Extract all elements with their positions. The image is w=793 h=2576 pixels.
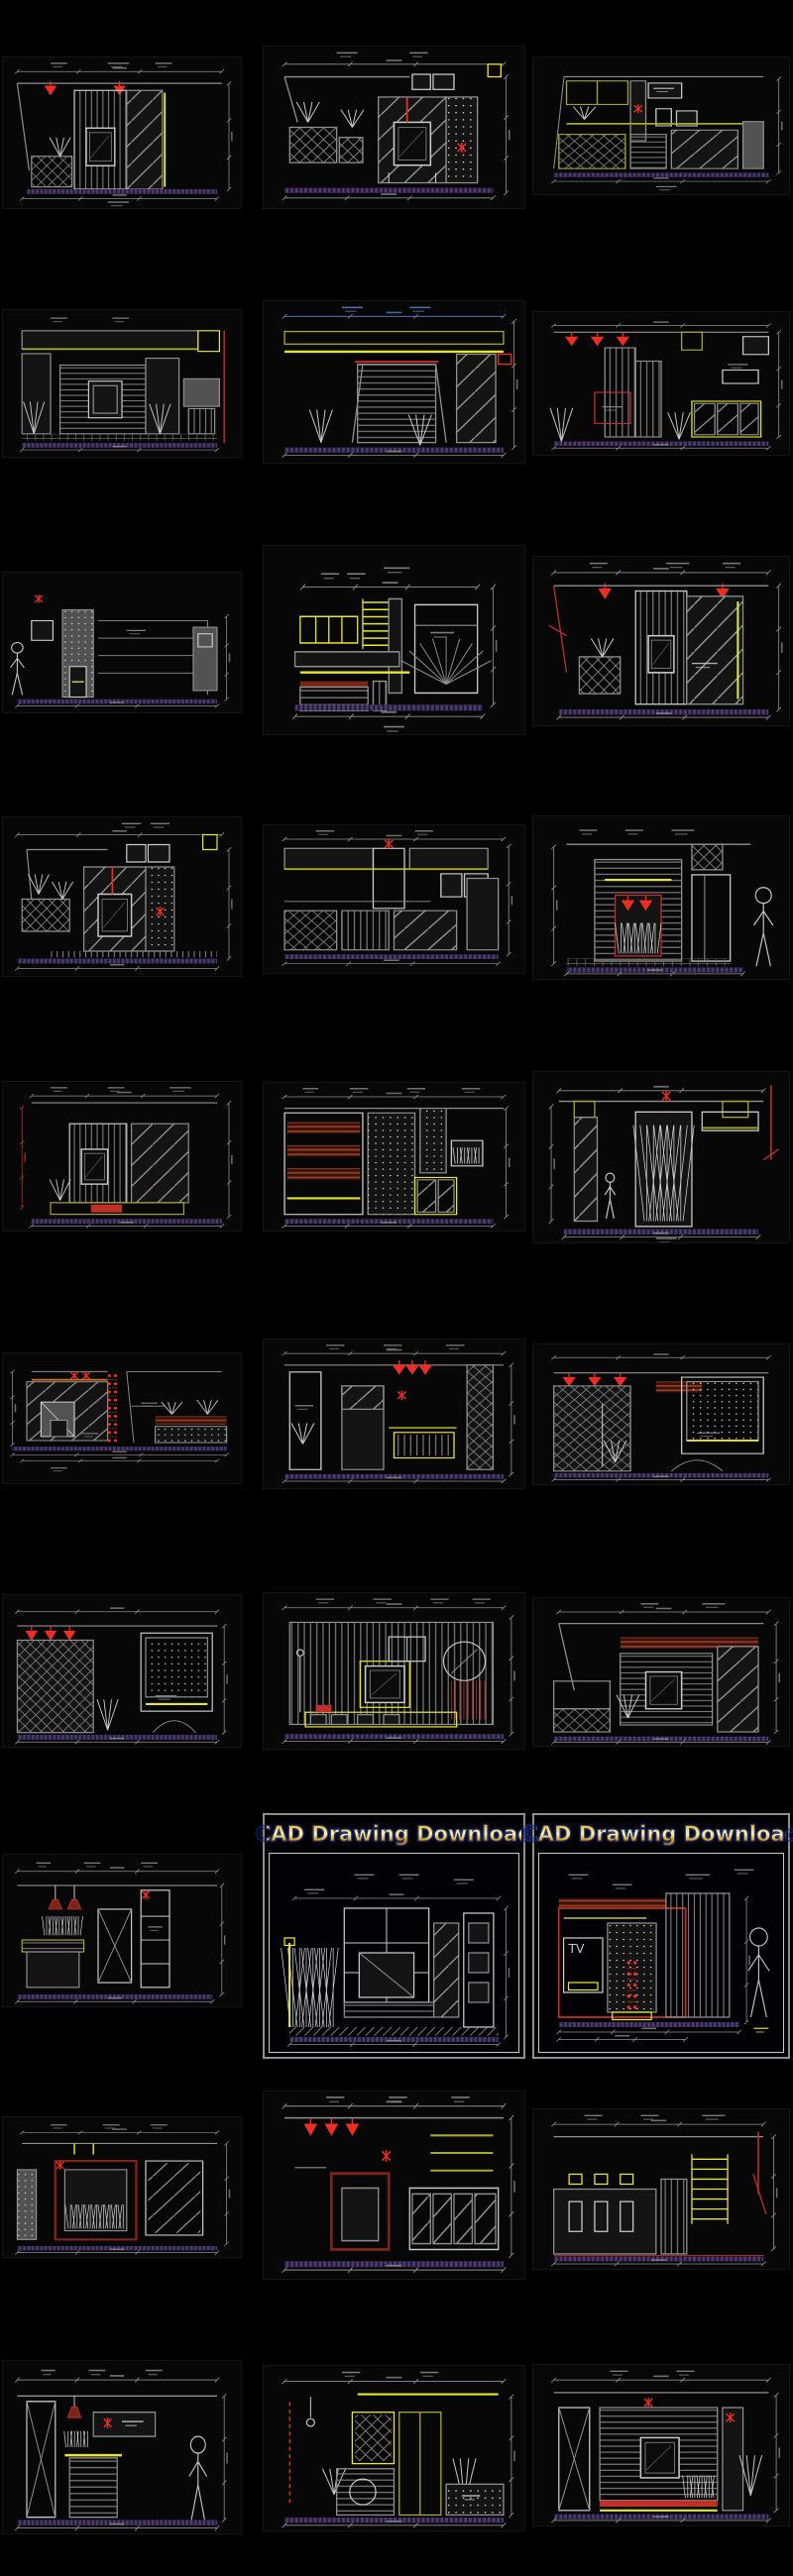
cad-elevation-drawing [264, 301, 524, 463]
cad-thumbnail-fireplace-wall-elevation[interactable] [532, 815, 790, 980]
cad-elevation-drawing [264, 2092, 524, 2279]
cad-elevation-drawing [3, 1595, 241, 1747]
cad-thumbnail-living-room-tv-wall-elevation-d[interactable] [2, 816, 242, 977]
cad-elevation-drawing [3, 2361, 241, 2533]
cad-elevation-drawing [533, 1072, 789, 1242]
cad-thumbnail-niche-wall-elevation[interactable] [2, 2116, 242, 2258]
cad-thumbnail-bar-wall-elevation-b[interactable] [2, 1594, 242, 1748]
cad-thumbnail-staircase-hall-elevation[interactable] [263, 545, 525, 735]
cad-thumbnail-feature-wall-elevation[interactable] [2, 309, 242, 458]
cad-thumbnail-display-shelving-elevation[interactable]: CAD Drawing Download [263, 1813, 525, 2059]
cad-elevation-drawing [264, 1083, 524, 1231]
cad-thumbnail-dining-room-cabinet-elevation[interactable] [532, 56, 790, 195]
cad-thumbnail-bar-wall-elevation-a[interactable] [532, 1343, 790, 1485]
cad-thumbnail-grid: CAD Drawing DownloadCAD Drawing Download… [0, 0, 793, 2576]
svg-text:TV: TV [568, 1941, 585, 1956]
cad-thumbnail-living-room-tv-wall-elevation-b[interactable] [263, 46, 525, 209]
cad-thumbnail-fireplace-lounge-elevation[interactable] [263, 2091, 525, 2280]
cad-thumbnail-living-room-tv-wall-elevation-a[interactable] [2, 56, 242, 209]
cad-thumbnail-wardrobe-elevation[interactable] [263, 1082, 525, 1232]
cad-thumbnail-media-room-elevation[interactable] [532, 2364, 790, 2526]
cad-thumbnail-hallway-wall-elevation[interactable] [263, 300, 525, 464]
cad-elevation-drawing [533, 1598, 789, 1746]
cad-elevation-drawing [533, 816, 789, 979]
cad-elevation-drawing [533, 1344, 789, 1484]
cad-elevation-drawing [264, 1593, 524, 1749]
cad-elevation-drawing [3, 1855, 241, 2006]
cad-elevation-drawing [533, 2109, 789, 2269]
cad-thumbnail-dressing-area-elevation[interactable] [263, 2365, 525, 2531]
cad-elevation-drawing: TV [538, 1853, 784, 2053]
cad-elevation-drawing [264, 47, 524, 208]
cad-elevation-drawing [264, 1340, 524, 1488]
cad-elevation-drawing [264, 2366, 524, 2530]
cad-elevation-drawing [3, 573, 241, 712]
cad-elevation-drawing [533, 312, 789, 455]
cad-thumbnail-media-wall-elevation[interactable] [263, 1592, 525, 1750]
cad-elevation-drawing [269, 1853, 519, 2053]
cad-thumbnail-bedroom-tv-wall-elevation[interactable] [2, 1081, 242, 1232]
cad-elevation-drawing [3, 2117, 241, 2257]
cad-download-banner: CAD Drawing Download [536, 1817, 786, 1851]
cad-thumbnail-art-niche-wall-elevation[interactable] [532, 1071, 790, 1243]
cad-thumbnail-bedroom-headboard-elevation-a[interactable] [2, 1352, 242, 1484]
cad-thumbnail-tv-feature-wall-elevation[interactable]: CAD Drawing DownloadTV [532, 1813, 790, 2059]
cad-elevation-drawing [264, 825, 524, 973]
cad-thumbnail-lounge-tv-wall-elevation[interactable] [532, 1597, 790, 1747]
cad-elevation-drawing [533, 57, 789, 194]
cad-elevation-drawing [3, 57, 241, 208]
cad-thumbnail-living-room-tv-wall-elevation-c[interactable] [532, 556, 790, 726]
cad-elevation-drawing [3, 817, 241, 976]
cad-elevation-drawing [3, 310, 241, 457]
cad-thumbnail-long-cabinet-elevation[interactable] [263, 824, 525, 974]
cad-download-banner: CAD Drawing Download [267, 1817, 521, 1851]
cad-thumbnail-bedroom-headboard-elevation-b[interactable] [263, 1339, 525, 1489]
cad-thumbnail-vanity-wall-elevation[interactable] [2, 1854, 242, 2007]
cad-elevation-drawing [3, 1082, 241, 1231]
cad-thumbnail-display-wall-elevation[interactable] [2, 572, 242, 713]
cad-elevation-drawing [533, 2365, 789, 2525]
cad-thumbnail-bathroom-wall-elevation[interactable] [532, 2108, 790, 2270]
cad-thumbnail-bar-counter-elevation[interactable] [2, 2360, 242, 2534]
cad-elevation-drawing [3, 1353, 241, 1483]
cad-thumbnail-tv-lounge-wall-elevation[interactable] [532, 311, 790, 456]
cad-elevation-drawing [264, 546, 524, 734]
cad-elevation-drawing [533, 557, 789, 725]
